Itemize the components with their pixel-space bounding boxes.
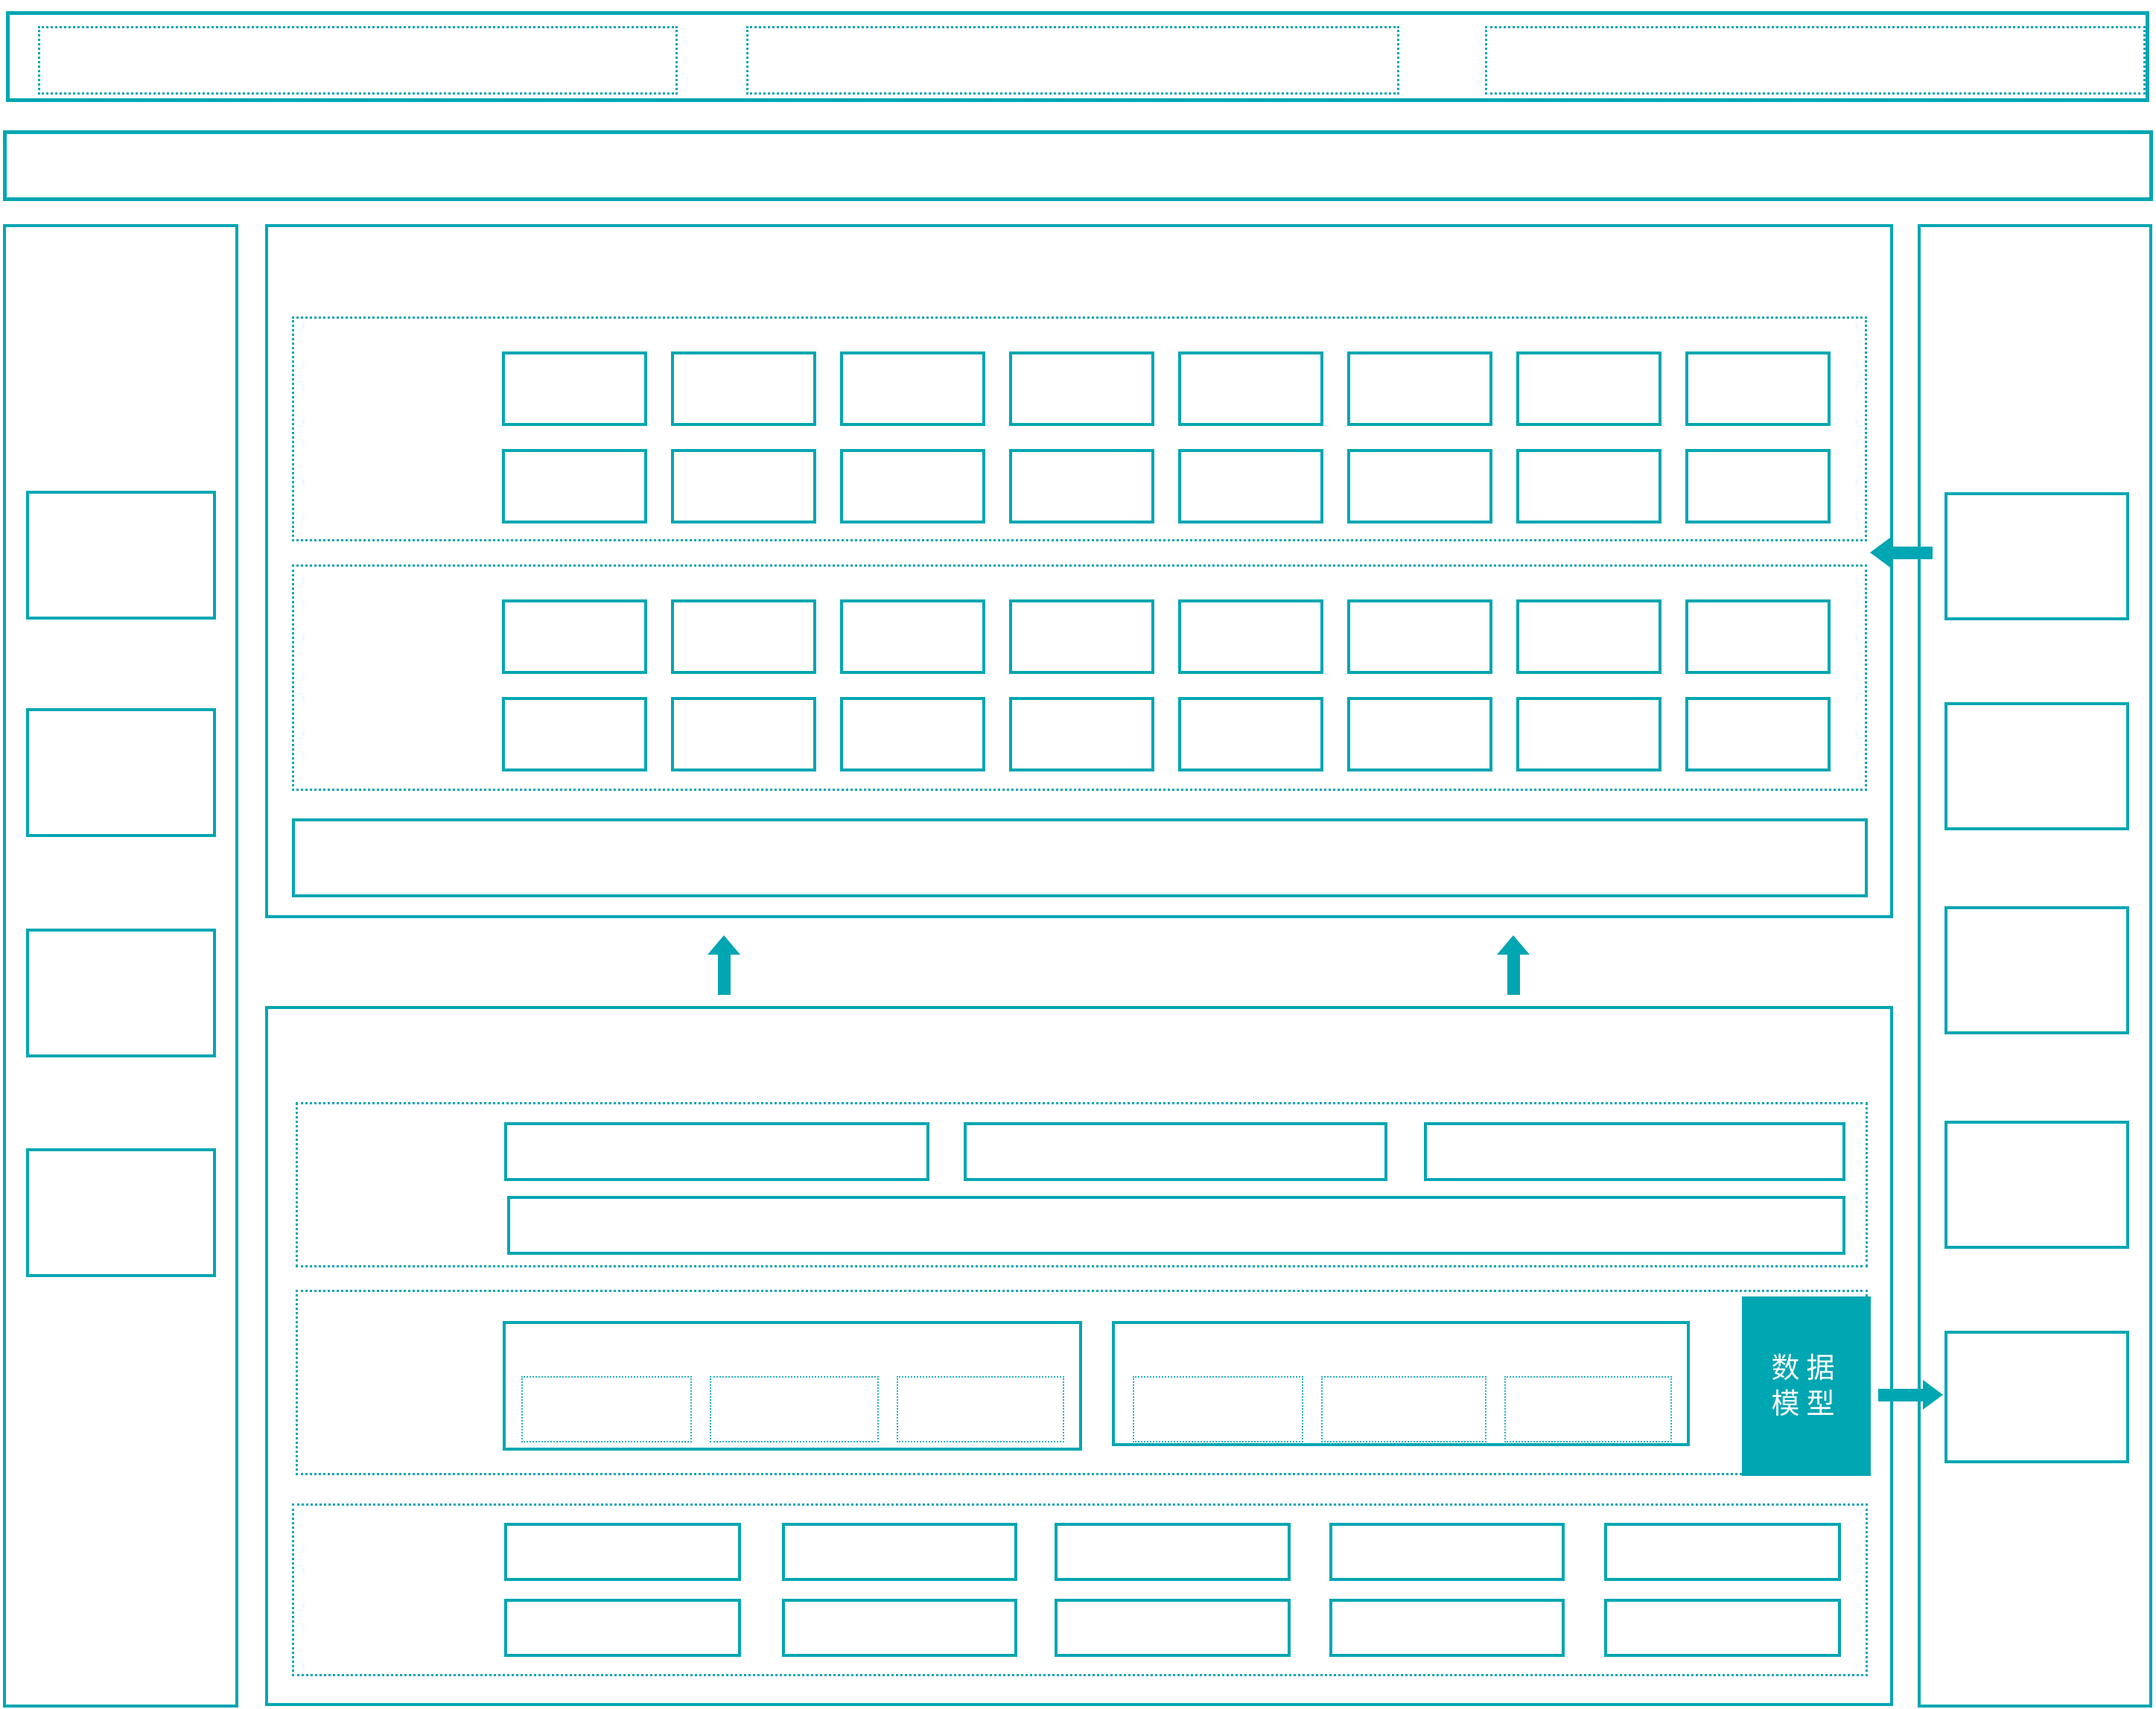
module-box: [671, 351, 816, 426]
infra-box: [1604, 1523, 1841, 1581]
left-panel-box-3: [26, 929, 216, 1057]
module-box: [1178, 697, 1323, 771]
data-sub-slot: [897, 1376, 1064, 1442]
module-box: [1347, 599, 1492, 674]
right-panel-box-2: [1944, 702, 2129, 830]
data-model-label: 数据模型: [1771, 1351, 1842, 1422]
module-box: [1347, 351, 1492, 426]
module-box: [502, 351, 647, 426]
module-box: [1516, 599, 1661, 674]
up-arrow-icon: [707, 935, 740, 995]
data-sub-slot: [521, 1376, 692, 1442]
right-panel-box-5: [1944, 1331, 2129, 1463]
module-box: [1347, 697, 1492, 771]
module-grid-1: [502, 351, 1835, 527]
left-arrow-icon: [1870, 538, 1933, 567]
module-box: [1347, 449, 1492, 523]
module-grid-section-2: [292, 564, 1867, 791]
right-panel-box-4: [1944, 1121, 2129, 1249]
module-box: [671, 599, 816, 674]
up-arrow-icon: [1497, 935, 1530, 995]
data-sub-slot: [710, 1376, 879, 1442]
module-grid-2: [502, 599, 1835, 775]
service-box-2: [964, 1122, 1387, 1181]
module-box: [1009, 351, 1154, 426]
infra-box: [504, 1523, 741, 1581]
diagram-canvas: 数据模型: [0, 0, 2156, 1709]
top-main-panel: [265, 224, 1893, 918]
top-bar: [6, 11, 2149, 102]
service-row-section: [296, 1102, 1868, 1267]
top-bar-slot-2: [746, 26, 1399, 95]
full-width-layer-box: [292, 818, 1868, 897]
module-box: [1178, 599, 1323, 674]
infra-box: [1329, 1599, 1565, 1657]
module-box: [1009, 599, 1154, 674]
module-box: [502, 697, 647, 771]
service-wide-box: [507, 1196, 1845, 1255]
module-box: [671, 697, 816, 771]
right-arrow-icon: [1878, 1380, 1943, 1410]
module-box: [1516, 449, 1661, 523]
infra-box: [1055, 1523, 1291, 1581]
module-box: [1516, 697, 1661, 771]
module-box: [1178, 449, 1323, 523]
left-panel-box-1: [26, 491, 216, 620]
module-box: [1685, 351, 1831, 426]
module-box: [1685, 449, 1831, 523]
infra-box: [1055, 1599, 1291, 1657]
module-box: [1685, 599, 1831, 674]
module-box: [1009, 697, 1154, 771]
infra-box: [782, 1599, 1017, 1657]
right-panel-box-1: [1944, 492, 2129, 620]
right-panel-box-3: [1944, 906, 2129, 1034]
module-box: [840, 697, 985, 771]
infra-box: [1329, 1523, 1565, 1581]
data-group-box-left: [503, 1321, 1082, 1451]
service-box-1: [504, 1122, 929, 1181]
left-panel-box-2: [26, 708, 216, 837]
service-box-3: [1424, 1122, 1845, 1181]
left-panel-box-4: [26, 1148, 216, 1277]
module-box: [1009, 449, 1154, 523]
top-bar-slot-3: [1485, 26, 2146, 95]
data-group-box-right: [1112, 1321, 1690, 1446]
module-box: [840, 449, 985, 523]
left-panel: [3, 224, 238, 1708]
module-box: [502, 449, 647, 523]
module-box: [840, 351, 985, 426]
data-sub-slot: [1504, 1376, 1672, 1442]
module-grid-section-1: [292, 316, 1867, 541]
module-box: [1178, 351, 1323, 426]
right-panel: [1918, 224, 2152, 1708]
module-box: [671, 449, 816, 523]
module-box: [1685, 697, 1831, 771]
module-box: [1516, 351, 1661, 426]
infra-box: [1604, 1599, 1841, 1657]
data-layer-section: 数据模型: [296, 1290, 1868, 1475]
module-box: [502, 599, 647, 674]
bottom-main-panel: 数据模型: [265, 1006, 1893, 1706]
infra-box: [504, 1599, 741, 1657]
infrastructure-grid-section: [292, 1503, 1868, 1676]
infra-box: [782, 1523, 1017, 1581]
secondary-bar: [3, 130, 2153, 201]
data-sub-slot: [1321, 1376, 1486, 1442]
top-bar-slot-1: [38, 26, 678, 95]
data-sub-slot: [1133, 1376, 1303, 1442]
module-box: [840, 599, 985, 674]
data-model-box: 数据模型: [1742, 1296, 1871, 1476]
